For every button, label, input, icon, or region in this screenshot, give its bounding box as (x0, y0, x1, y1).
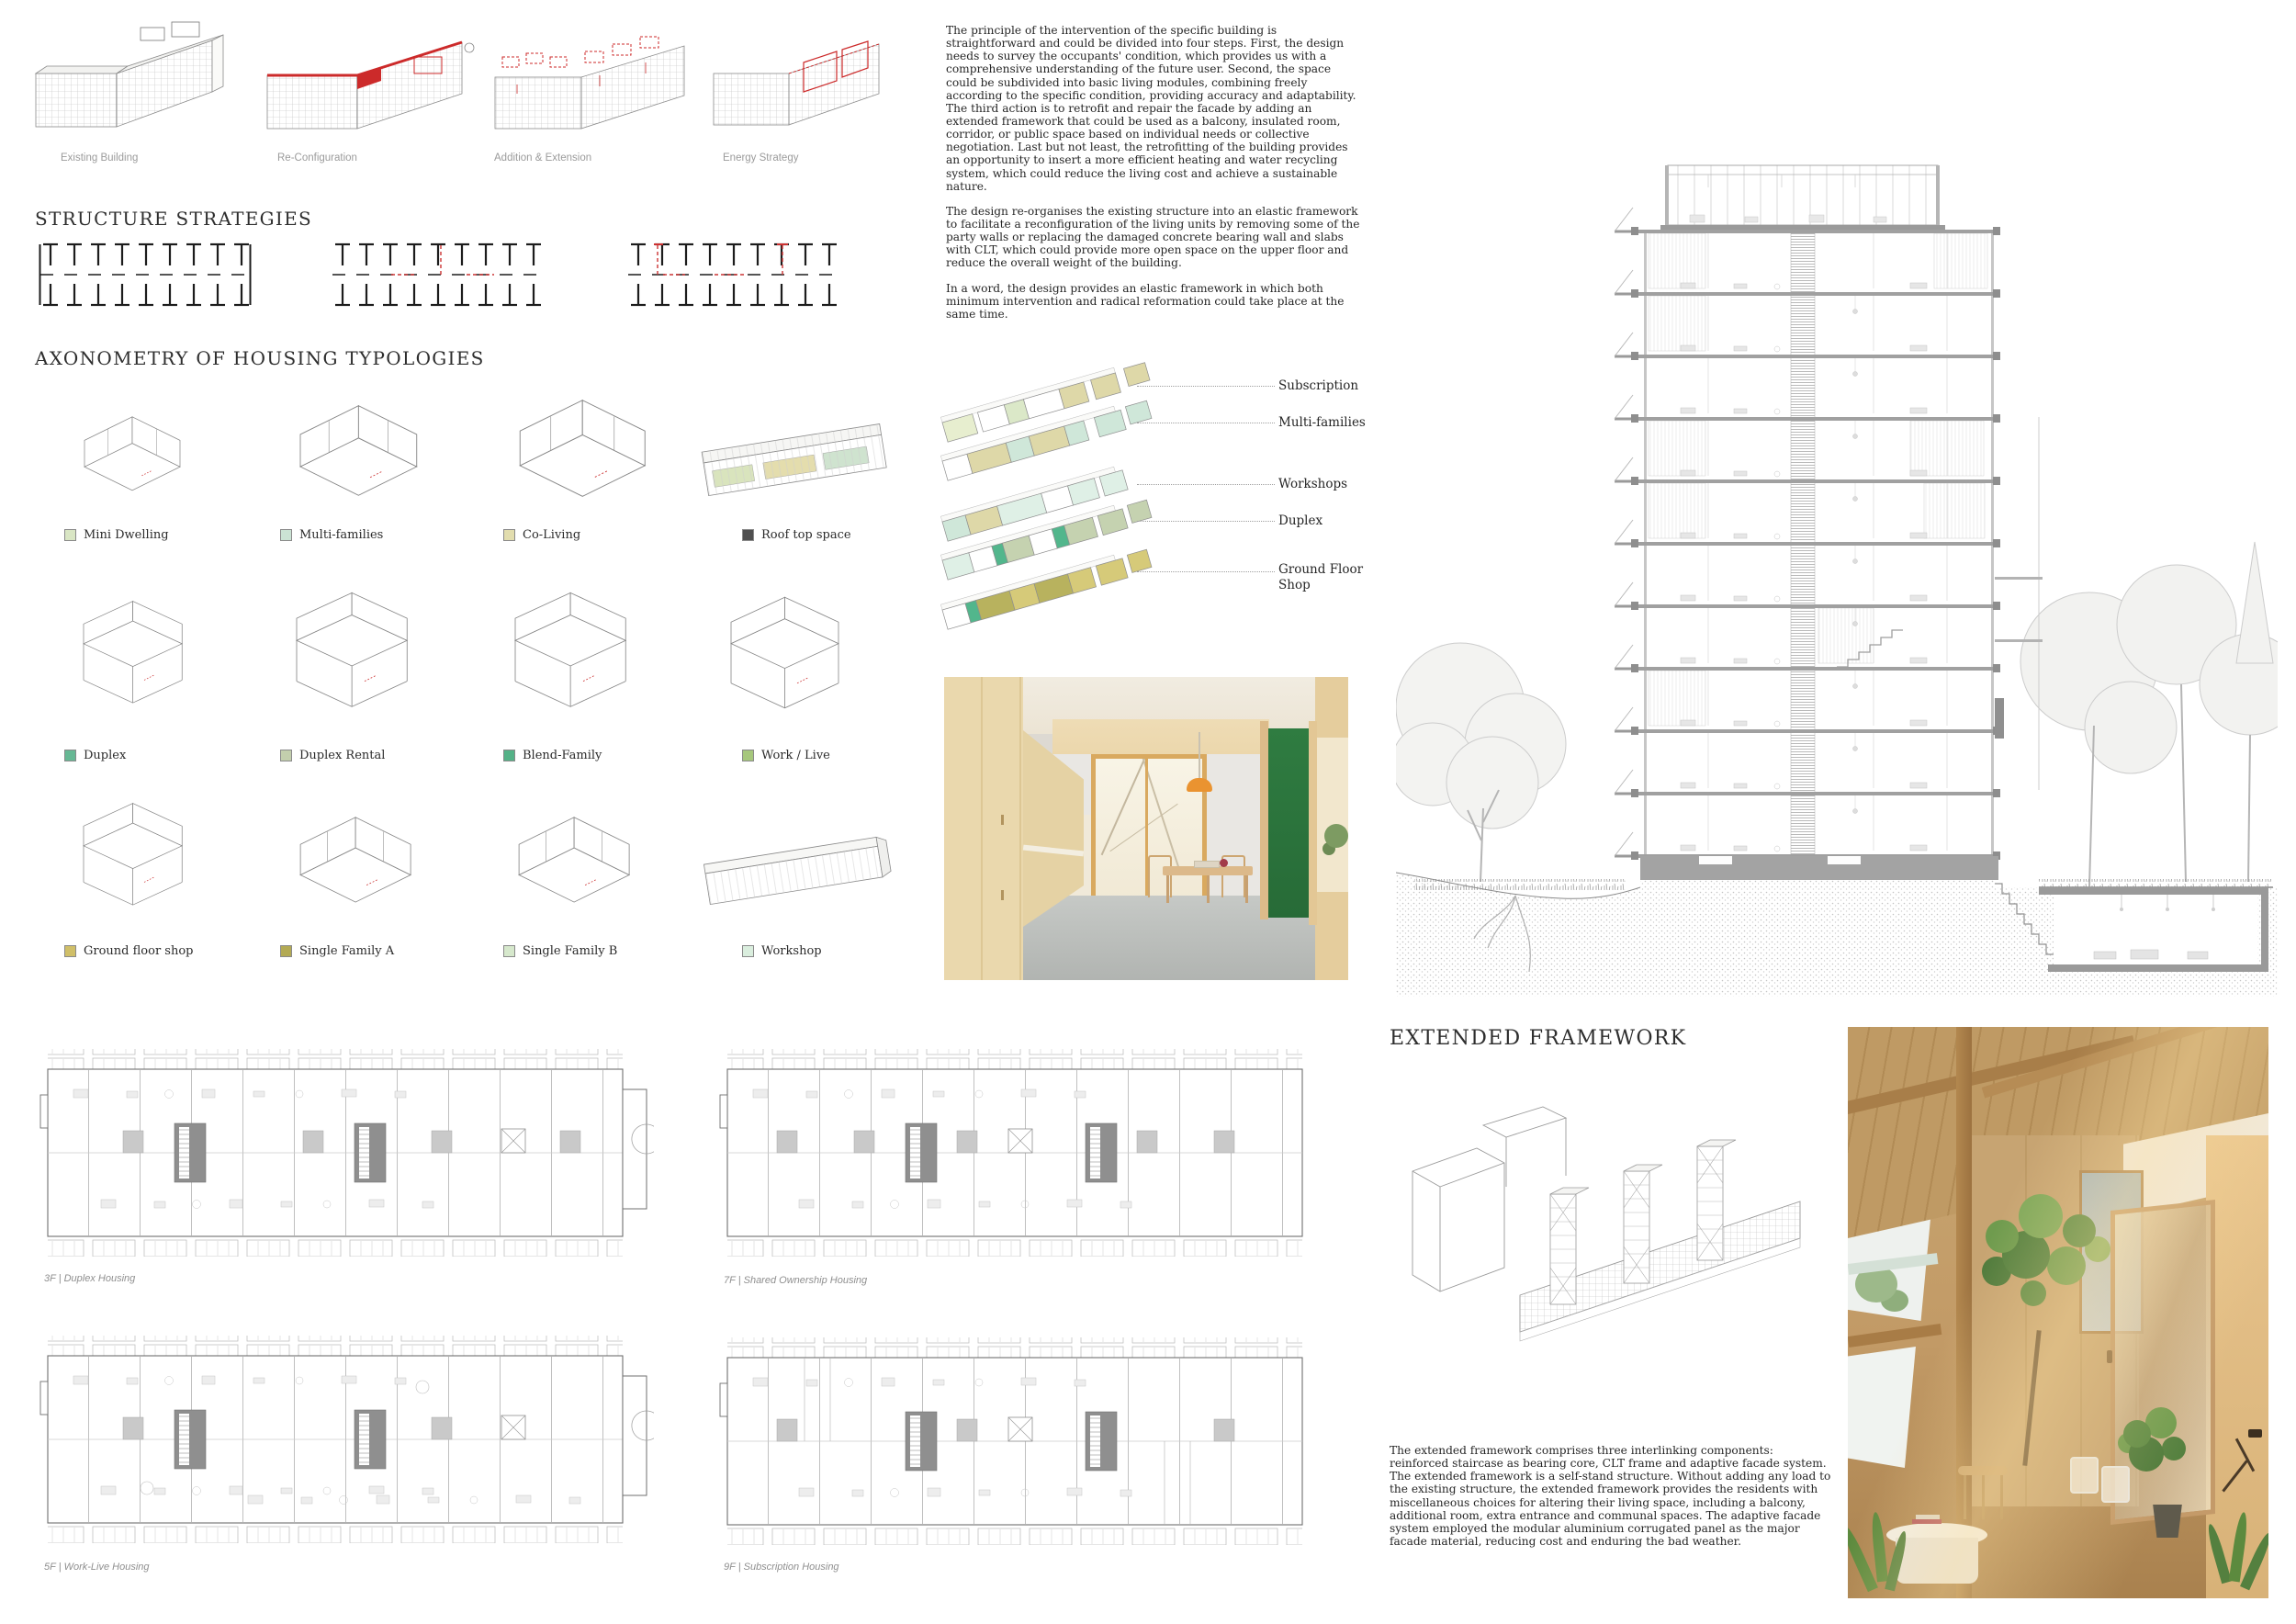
section-trees-left (1396, 643, 1566, 829)
legend-item: Multi-families (280, 528, 383, 542)
reconfiguration-diagram (260, 20, 480, 149)
legend-label: Co-Living (523, 528, 580, 542)
green-sliding-door (1268, 728, 1309, 918)
exploded-label-subscription: Subscription (1278, 378, 1358, 394)
extended-framework-heading: EXTENDED FRAMEWORK (1390, 1027, 1686, 1050)
leader-line (1137, 386, 1275, 387)
typology-drawing-duplex (53, 577, 205, 738)
orange-pendant-lamp (1187, 778, 1212, 792)
diagram-caption: Re-Configuration (277, 152, 357, 164)
typology-drawing-blend-family (481, 571, 651, 737)
typology-drawing-multi-families (264, 386, 444, 514)
presentation-board: Existing Building Re-Configuration Addit… (0, 0, 2296, 1624)
legend-swatch (280, 750, 292, 761)
existing-building-diagram (32, 20, 230, 149)
typology-drawing-single-family-a (266, 790, 436, 932)
balcony-glimpse (1317, 738, 1348, 892)
door-jamb (1309, 721, 1317, 925)
intro-paragraph-1: The principle of the intervention of the… (946, 24, 1365, 193)
typology-drawing-co-living (481, 381, 674, 514)
legend-item: Roof top space (742, 528, 851, 542)
legend-label: Blend-Family (523, 749, 602, 762)
energy-strategy-diagram (712, 20, 895, 149)
legend-item: Work / Live (742, 749, 830, 762)
diagram-caption: Addition & Extension (494, 152, 591, 164)
legend-label: Single Family A (299, 944, 394, 958)
diagram-caption: Energy Strategy (723, 152, 798, 164)
section-trees-right (2020, 542, 2278, 773)
legend-swatch (503, 750, 515, 761)
exploded-label-multi-families: Multi-families (1278, 415, 1366, 431)
legend-swatch (64, 750, 76, 761)
typology-drawing-work-live (698, 577, 863, 738)
floor-plan-caption: 3F | Duplex Housing (44, 1273, 135, 1284)
legend-item: Mini Dwelling (64, 528, 169, 542)
typology-drawing-mini-dwelling (55, 393, 202, 513)
floor-plan-caption: 7F | Shared Ownership Housing (724, 1275, 867, 1286)
balcony-interior-photo (1848, 1027, 2268, 1598)
plant (1324, 824, 1348, 848)
legend-item: Ground floor shop (64, 944, 194, 958)
table-leg (1207, 875, 1210, 903)
floor-plan-3f-duplex (37, 1036, 654, 1269)
structure-strategies-heading: STRUCTURE STRATEGIES (35, 208, 312, 230)
typology-drawing-single-family-b (485, 790, 655, 932)
legend-label: Workshop (761, 944, 822, 958)
legend-item: Blend-Family (503, 749, 602, 762)
cabinet-handle (1001, 890, 1004, 900)
typology-drawing-roof-top-space (694, 386, 896, 514)
legend-swatch (280, 945, 292, 957)
typology-drawing-workshop (694, 788, 896, 930)
legend-item: Single Family A (280, 944, 394, 958)
exploded-label-ground-floor-shop: Ground Floor Shop (1278, 562, 1370, 593)
typology-drawing-ground-floor-shop (53, 781, 205, 937)
legend-item: Single Family B (503, 944, 617, 958)
door-jamb (1260, 721, 1268, 919)
kitchen-soffit (1052, 719, 1269, 754)
legend-swatch (742, 945, 754, 957)
legend-label: Duplex (84, 749, 126, 762)
exploded-label-duplex: Duplex (1278, 513, 1322, 529)
floor-plan-5f-work-live (37, 1323, 654, 1556)
legend-label: Roof top space (761, 528, 851, 542)
legend-item: Co-Living (503, 528, 580, 542)
axonometry-heading: AXONOMETRY OF HOUSING TYPOLOGIES (35, 347, 485, 369)
floor-plan-caption: 9F | Subscription Housing (724, 1562, 839, 1573)
legend-swatch (64, 529, 76, 541)
floor-plan-caption: 5F | Work-Live Housing (44, 1562, 150, 1573)
interior-kitchen-photo (944, 677, 1348, 980)
legend-swatch (503, 945, 515, 957)
leader-line (1137, 484, 1275, 485)
floor-plan-9f-subscription (716, 1325, 1334, 1558)
table-leg (1245, 875, 1248, 903)
pendant-cord (1199, 732, 1200, 780)
kitchen-tall-cabinets (944, 677, 1023, 980)
structure-strategy-diagram-1 (39, 241, 252, 309)
legend-item: Workshop (742, 944, 822, 958)
intro-paragraph-2: The design re-organises the existing str… (946, 205, 1365, 270)
legend-swatch (742, 529, 754, 541)
sunlight-overlay (1848, 1027, 2268, 1598)
extended-framework-paragraph: The extended framework comprises three i… (1390, 1444, 1836, 1548)
intro-paragraph-3: In a word, the design provides an elasti… (946, 282, 1365, 321)
intro-text: The principle of the intervention of the… (946, 24, 1365, 333)
books-on-table (1194, 861, 1220, 868)
cabinet-handle (1001, 815, 1004, 825)
extended-framework-text: The extended framework comprises three i… (1390, 1444, 1836, 1560)
leader-line (1137, 571, 1275, 572)
typology-drawing-duplex-rental (263, 571, 433, 737)
exploded-label-workshops: Workshops (1278, 477, 1347, 492)
legend-label: Work / Live (761, 749, 830, 762)
building-section-drawing (1396, 147, 2278, 1001)
legend-swatch (280, 529, 292, 541)
leader-line (1137, 423, 1275, 423)
fruit-bowl (1220, 859, 1228, 867)
table-leg (1166, 875, 1169, 903)
legend-swatch (742, 750, 754, 761)
legend-label: Multi-families (299, 528, 383, 542)
addition-extension-diagram (490, 20, 705, 149)
legend-swatch (64, 945, 76, 957)
leader-line (1137, 521, 1275, 522)
structure-strategy-diagram-3 (626, 241, 839, 309)
legend-label: Ground floor shop (84, 944, 194, 958)
legend-label: Duplex Rental (299, 749, 385, 762)
section-building (1615, 165, 2043, 880)
structure-strategy-diagram-2 (331, 241, 544, 309)
legend-swatch (503, 529, 515, 541)
legend-label: Single Family B (523, 944, 617, 958)
rooftop-greenhouse (1660, 165, 1945, 230)
legend-label: Mini Dwelling (84, 528, 169, 542)
legend-item: Duplex Rental (280, 749, 385, 762)
legend-item: Duplex (64, 749, 126, 762)
diagram-caption: Existing Building (61, 152, 138, 164)
floor-plan-7f-shared-ownership (716, 1036, 1334, 1269)
extended-framework-drawing (1396, 1084, 1837, 1396)
